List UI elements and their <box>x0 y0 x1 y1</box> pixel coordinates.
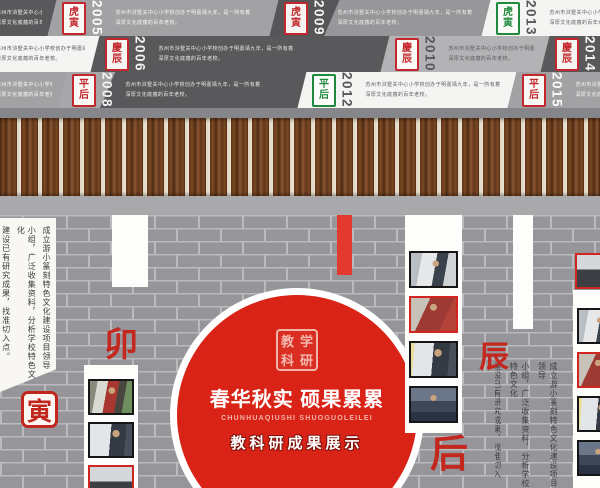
timeline-card-2010: 慶辰2010苏州市浒墅关中心小学校创办于明嘉靖九年，是一所有着深厚文化底蕴的百年… <box>381 36 550 72</box>
seal-stamp-icon: 平后 <box>312 74 336 107</box>
year-label: 2006 <box>133 36 147 72</box>
year-label: 2009 <box>312 0 326 36</box>
white-pillar-left <box>112 215 148 287</box>
vertical-text-column: 小组，广泛收集资料，分析学校特色文化 <box>508 362 531 488</box>
timeline-card-2005: 虎寅2005苏州市浒墅关中心小学校创办于明嘉靖九年，是一所有着深厚文化底蕴的百年… <box>48 0 279 36</box>
wall-seal-character-left: 卯 <box>104 329 138 363</box>
vertical-text-column: 建设已有研究成果，找准切入点。 <box>0 226 11 384</box>
seal-stamp-icon: 慶辰 <box>395 38 419 71</box>
timeline-band: 苏州市浒墅关中心小学校创办于明嘉靖九年，是一所有着深厚文化底蕴的百年老校。虎寅2… <box>0 0 600 108</box>
photo <box>409 296 458 333</box>
timeline-card-2009: 虎寅2009苏州市浒墅关中心小学校创办于明嘉靖九年，是一所有着深厚文化底蕴的百年… <box>270 0 491 36</box>
year-label: 2013 <box>524 0 538 36</box>
vertical-text-column: 成立游小篆刻特色文化建设项目领导 <box>536 362 559 488</box>
culture-wall-design: 苏州市浒墅关中心小学校创办于明嘉靖九年，是一所有着深厚文化底蕴的百年老校。虎寅2… <box>0 0 600 488</box>
timeline-text-fragment: 苏州市浒墅关中心小学校创办于明嘉靖九年，是一所有着深厚文化底蕴的百年老校。 <box>0 36 99 72</box>
timeline-card-2015: 平后2015苏州市浒墅关中心小学校创办于明嘉靖九年，是一所有着深厚文化底蕴的百年… <box>508 72 600 108</box>
photo <box>577 308 600 344</box>
photo <box>577 440 600 476</box>
timeline-row-1: 苏州市浒墅关中心小学校创办于明嘉靖九年，是一所有着深厚文化底蕴的百年老校。虎寅2… <box>0 0 600 36</box>
year-label: 2010 <box>423 36 437 72</box>
school-intro-text: 苏州市浒墅关中心小学校创办于明嘉靖九年，是一所有着深厚文化底蕴的百年老校。 <box>0 44 85 65</box>
photo <box>577 396 600 432</box>
right-wall-text: 成立游小篆刻特色文化建设项目领导小组，广泛收集资料，分析学校特色文化建设已有研究… <box>495 362 559 488</box>
photo <box>577 352 600 388</box>
school-intro-text: 苏州市浒墅关中心小学校创办于明嘉靖九年，是一所有着深厚文化底蕴的百年老校。 <box>354 80 503 101</box>
circle-seal-icon: 教学科研 <box>276 329 318 371</box>
red-ribbon <box>337 215 352 275</box>
year-label: 2014 <box>583 36 597 72</box>
vertical-text-column: 小组，广泛收集资料，分析学校特色文化 <box>15 226 37 384</box>
circle-subtitle: 教科研成果展示 <box>230 432 363 453</box>
photo <box>88 465 134 488</box>
photo <box>88 379 134 415</box>
school-intro-text: 苏州市浒墅关中心小学校创办于明嘉靖九年，是一所有着深厚文化底蕴的百年老校。 <box>564 80 600 101</box>
timeline-row-2: 苏州市浒墅关中心小学校创办于明嘉靖九年，是一所有着深厚文化底蕴的百年老校。慶辰2… <box>0 36 600 72</box>
vertical-text-column: 建设已有研究成果，找准切入点。 <box>495 362 503 488</box>
circle-title: 春华秋实 硕果累累 <box>210 383 385 412</box>
photo <box>409 251 458 288</box>
photo <box>409 341 458 378</box>
seal-stamp-icon: 慶辰 <box>555 38 579 71</box>
seal-stamp-icon: 虎寅 <box>284 2 308 35</box>
timeline-card-2014: 慶辰2014苏州市浒墅关中心小学校创办于明嘉靖九年，是一所有着深厚文化底蕴的百年… <box>541 36 600 72</box>
wall-seal-character-bottom-right: 后 <box>430 436 468 474</box>
school-intro-text: 苏州市浒墅关中心小学校创办于明嘉靖九年，是一所有着深厚文化底蕴的百年老校。 <box>0 80 52 101</box>
school-intro-text: 苏州市浒墅关中心小学校创办于明嘉靖九年，是一所有着深厚文化底蕴的百年老校。 <box>538 8 600 29</box>
year-label: 2005 <box>90 0 104 36</box>
wood-slat-panel <box>0 118 600 196</box>
school-intro-text: 苏州市浒墅关中心小学校创办于明嘉靖九年，是一所有着深厚文化底蕴的百年老校。 <box>0 8 42 29</box>
vertical-text-column: 成立游小篆刻特色文化建设项目领导 <box>40 226 51 384</box>
stamp-seal-icon: 寅 <box>21 391 58 428</box>
school-intro-text: 苏州市浒墅关中心小学校创办于明嘉靖九年，是一所有着深厚文化底蕴的百年老校。 <box>147 44 376 65</box>
photo <box>409 386 458 423</box>
photo-strip-right <box>405 215 462 433</box>
school-intro-text: 苏州市浒墅关中心小学校创办于明嘉靖九年，是一所有着深厚文化底蕴的百年老校。 <box>597 44 600 65</box>
circle-pinyin: CHUNHUAQIUSHI SHUOGUOLEILEI <box>221 415 373 422</box>
photo <box>88 422 134 458</box>
seal-stamp-icon: 平后 <box>522 74 546 107</box>
photo-strip-far-right <box>573 290 600 488</box>
photo <box>575 253 600 289</box>
brick-wall: 成立游小篆刻特色文化建设项目领导小组，广泛收集资料，分析学校特色文化建设已有研究… <box>0 215 600 488</box>
school-intro-text: 苏州市浒墅关中心小学校创办于明嘉靖九年，是一所有着深厚文化底蕴的百年老校。 <box>104 8 265 29</box>
timeline-card-2013: 虎寅2013苏州市浒墅关中心小学校创办于明嘉靖九年，是一所有着深厚文化底蕴的百年… <box>482 0 600 36</box>
timeline-text-fragment: 苏州市浒墅关中心小学校创办于明嘉靖九年，是一所有着深厚文化底蕴的百年老校。 <box>0 72 66 108</box>
timeline-card-2008: 平后2008苏州市浒墅关中心小学校创办于明嘉靖九年，是一所有着深厚文化底蕴的百年… <box>58 72 307 108</box>
school-intro-text: 苏州市浒墅关中心小学校创办于明嘉靖九年，是一所有着深厚文化底蕴的百年老校。 <box>114 80 293 101</box>
year-label: 2012 <box>340 72 354 108</box>
school-intro-text: 苏州市浒墅关中心小学校创办于明嘉靖九年，是一所有着深厚文化底蕴的百年老校。 <box>437 44 536 65</box>
year-label: 2008 <box>100 72 114 108</box>
seal-stamp-icon: 虎寅 <box>496 2 520 35</box>
seal-stamp-icon: 慶辰 <box>105 38 129 71</box>
school-intro-text: 苏州市浒墅关中心小学校创办于明嘉靖九年，是一所有着深厚文化底蕴的百年老校。 <box>326 8 477 29</box>
photo-strip-left <box>84 365 138 488</box>
year-label: 2015 <box>550 72 564 108</box>
wall-seal-character-right: 辰 <box>479 343 509 373</box>
gray-divider-band-2 <box>0 196 600 215</box>
white-pillar-right <box>513 215 533 329</box>
timeline-card-2012: 平后2012苏州市浒墅关中心小学校创办于明嘉靖九年，是一所有着深厚文化底蕴的百年… <box>298 72 517 108</box>
gray-divider-band <box>0 108 600 118</box>
seal-stamp-icon: 平后 <box>72 74 96 107</box>
timeline-card-2006: 慶辰2006苏州市浒墅关中心小学校创办于明嘉靖九年，是一所有着深厚文化底蕴的百年… <box>91 36 390 72</box>
seal-stamp-icon: 虎寅 <box>62 2 86 35</box>
left-banner-text: 成立游小篆刻特色文化建设项目领导小组，广泛收集资料，分析学校特色文化建设已有研究… <box>0 218 56 392</box>
timeline-row-3: 苏州市浒墅关中心小学校创办于明嘉靖九年，是一所有着深厚文化底蕴的百年老校。平后2… <box>0 72 600 108</box>
